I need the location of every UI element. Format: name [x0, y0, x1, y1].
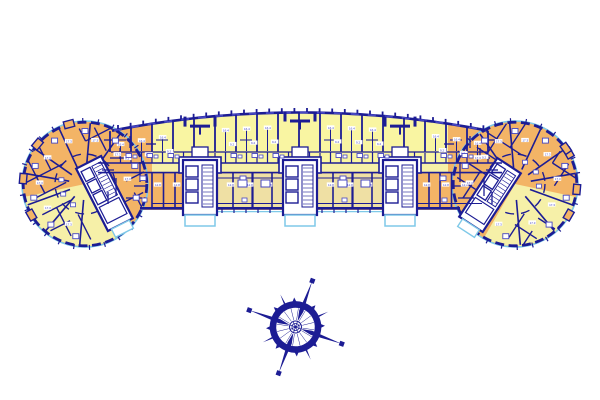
svg-text:12.8: 12.8	[174, 183, 180, 187]
svg-text:12.8: 12.8	[424, 183, 430, 187]
svg-text:9.2: 9.2	[440, 149, 445, 153]
svg-text:12.8: 12.8	[228, 183, 234, 187]
svg-text:12.8: 12.8	[247, 183, 253, 187]
svg-text:9.2: 9.2	[251, 141, 256, 145]
svg-text:9.2: 9.2	[356, 141, 361, 145]
svg-text:16.4: 16.4	[160, 136, 166, 140]
svg-text:9.2: 9.2	[377, 142, 382, 146]
svg-text:16.4: 16.4	[349, 127, 355, 131]
svg-text:12.8: 12.8	[347, 183, 353, 187]
svg-text:16.4: 16.4	[265, 126, 271, 130]
svg-text:16.4: 16.4	[139, 139, 145, 143]
svg-text:16.4: 16.4	[118, 143, 124, 147]
svg-text:16.4: 16.4	[328, 126, 334, 130]
svg-text:9.2: 9.2	[230, 143, 235, 147]
svg-text:17.3: 17.3	[549, 203, 555, 207]
svg-text:12.8: 12.8	[155, 183, 161, 187]
svg-text:17.3: 17.3	[92, 139, 98, 143]
svg-text:17.3: 17.3	[115, 153, 121, 157]
svg-text:17.3: 17.3	[125, 177, 131, 181]
svg-text:17.3: 17.3	[66, 140, 72, 144]
svg-text:16.4: 16.4	[454, 138, 460, 142]
svg-text:9.2: 9.2	[335, 140, 340, 144]
svg-text:12.8: 12.8	[443, 183, 449, 187]
svg-text:17.3: 17.3	[66, 222, 72, 226]
svg-text:17.3: 17.3	[530, 221, 536, 225]
svg-text:12.8: 12.8	[328, 183, 334, 187]
svg-text:17.3: 17.3	[37, 181, 43, 185]
svg-text:9.2: 9.2	[167, 150, 172, 154]
svg-text:16.4: 16.4	[223, 129, 229, 133]
svg-text:16.4: 16.4	[370, 128, 376, 132]
svg-text:17.3: 17.3	[545, 153, 551, 157]
svg-text:17.3: 17.3	[522, 139, 528, 143]
svg-text:17.3: 17.3	[475, 156, 481, 160]
svg-text:17.3: 17.3	[496, 140, 502, 144]
svg-text:17.3: 17.3	[496, 222, 502, 226]
svg-text:17.3: 17.3	[555, 177, 561, 181]
svg-text:17.3: 17.3	[467, 181, 473, 185]
svg-text:16.4: 16.4	[475, 141, 481, 145]
svg-text:16.4: 16.4	[244, 127, 250, 131]
svg-text:9.2: 9.2	[482, 155, 487, 159]
svg-text:17.3: 17.3	[45, 206, 51, 210]
svg-text:9.2: 9.2	[272, 140, 277, 144]
svg-text:17.3: 17.3	[45, 156, 51, 160]
svg-text:16.4: 16.4	[433, 135, 439, 139]
